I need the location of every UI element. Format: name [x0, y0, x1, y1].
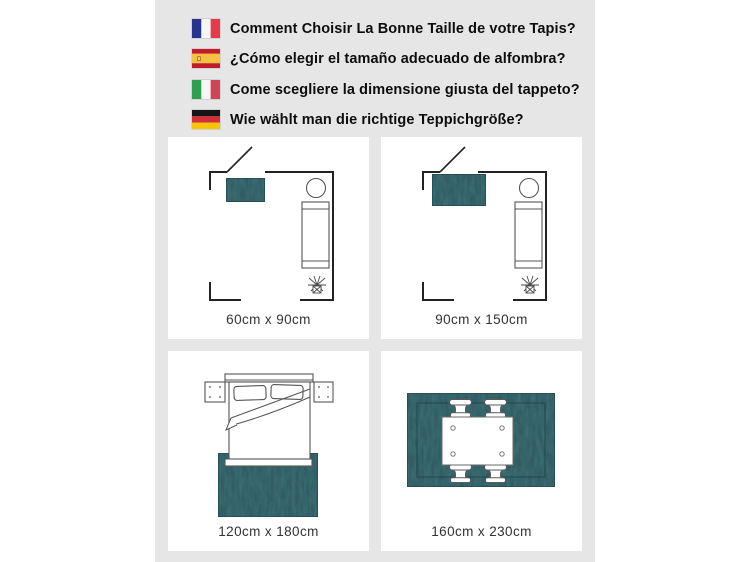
rug-size-label: 160cm x 230cm [381, 524, 582, 539]
rug-size-label: 60cm x 90cm [168, 312, 369, 327]
open-door-leaf [440, 147, 465, 172]
panel-rug-120x180: 120cm x 180cm [168, 351, 369, 551]
bed [225, 374, 313, 466]
germany-flag-icon [192, 110, 220, 129]
spain-flag-icon [192, 49, 220, 68]
header-row-italian: Come scegliere la dimensione giusta del … [192, 80, 580, 99]
dining-table [442, 417, 513, 465]
floor-plan-small-rug [168, 137, 369, 307]
header-question-spanish: ¿Cómo elegir el tamaño adecuado de alfom… [230, 51, 566, 67]
dining-room-scene [381, 351, 582, 523]
wall-bottom-left [423, 282, 454, 300]
wall-top-left [210, 172, 227, 190]
open-door-leaf [227, 147, 252, 172]
rug-size-label: 120cm x 180cm [168, 524, 369, 539]
sofa [515, 202, 542, 268]
bedroom-scene [168, 351, 369, 523]
nightstand-left [205, 382, 225, 402]
header-question-german: Wie wählt man die richtige Teppichgröße? [230, 112, 524, 128]
france-flag-icon [192, 19, 220, 38]
panel-rug-60x90: 60cm x 90cm [168, 137, 369, 339]
wall-bottom-left [210, 282, 241, 300]
header-row-french: Comment Choisir La Bonne Taille de votre… [192, 19, 576, 38]
panel-rug-160x230: 160cm x 230cm [381, 351, 582, 551]
header-row-german: Wie wählt man die richtige Teppichgröße? [192, 110, 524, 129]
content-strip: Comment Choisir La Bonne Taille de votre… [155, 0, 595, 562]
rug-size-label: 90cm x 150cm [381, 312, 582, 327]
nightstand-right [314, 382, 333, 402]
pillow-left [234, 385, 266, 400]
sofa [302, 202, 329, 268]
rug-top-view [226, 178, 265, 202]
footboard [225, 459, 312, 466]
italy-flag-icon [192, 80, 220, 99]
headboard [225, 374, 313, 382]
potted-plant-icon [521, 276, 539, 293]
round-side-table [307, 179, 326, 198]
header-question-italian: Come scegliere la dimensione giusta del … [230, 82, 580, 98]
rug-size-infographic: Comment Choisir La Bonne Taille de votre… [0, 0, 750, 562]
rug-top-view [432, 174, 486, 206]
header-row-spanish: ¿Cómo elegir el tamaño adecuado de alfom… [192, 49, 566, 68]
floor-plan-medium-rug [381, 137, 582, 307]
header-question-french: Comment Choisir La Bonne Taille de votre… [230, 21, 576, 37]
potted-plant-icon [308, 276, 326, 293]
round-side-table [520, 179, 539, 198]
panel-rug-90x150: 90cm x 150cm [381, 137, 582, 339]
